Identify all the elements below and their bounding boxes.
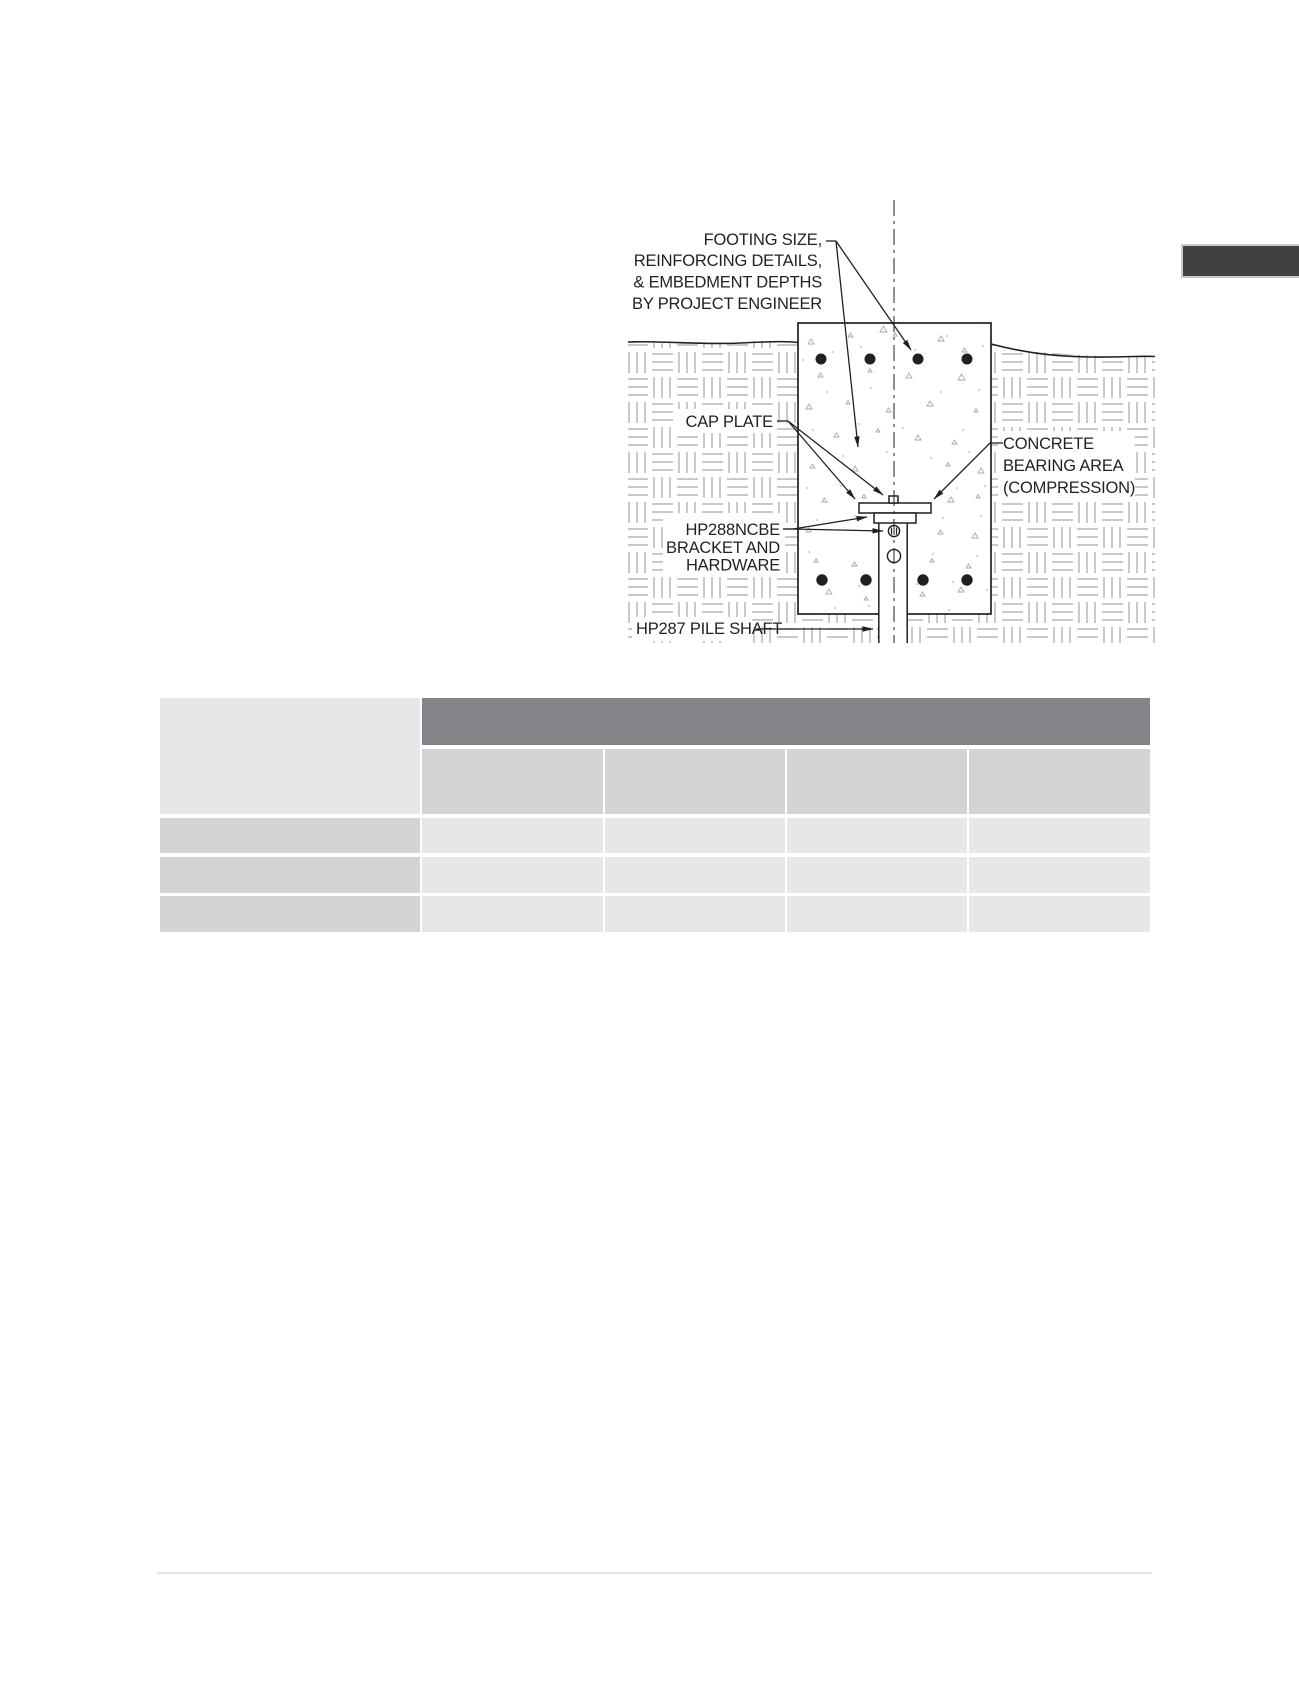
- table-subheader-cell: [969, 749, 1150, 814]
- table-data-cell: [605, 818, 785, 853]
- footing-note-label: BY PROJECT ENGINEER: [632, 295, 822, 313]
- pile-shaft-label: HP287 PILE SHAFT: [636, 620, 782, 638]
- footing-note-label: & EMBEDMENT DEPTHS: [633, 274, 822, 292]
- bracket-label: HARDWARE: [686, 557, 780, 575]
- table-subheader-cell: [422, 749, 603, 814]
- table-data-cell: [787, 896, 967, 932]
- table-subheader-cell: [605, 749, 785, 814]
- table-subheader-cell: [787, 749, 967, 814]
- table-data-cell: [787, 818, 967, 853]
- catalog-page: FOOTING SIZE, REINFORCING DETAILS, & EMB…: [0, 0, 1299, 1692]
- table-data-cell: [969, 818, 1150, 853]
- concrete-bearing-label: BEARING AREA: [1003, 457, 1124, 475]
- table-header-band: [422, 698, 1150, 745]
- table-data-cell: [969, 857, 1150, 893]
- bracket-label: HP288NCBE: [686, 521, 781, 539]
- cap-plate-label: CAP PLATE: [686, 413, 774, 431]
- bracket-shape: [874, 513, 916, 523]
- table-data-cell: [422, 857, 603, 893]
- table-data-cell: [605, 896, 785, 932]
- footing-note-label: FOOTING SIZE,: [704, 231, 822, 249]
- concrete-bearing-label: CONCRETE: [1003, 435, 1094, 453]
- capacity-table: [160, 698, 1150, 932]
- table-row-label: [160, 857, 420, 893]
- cap-plate-shape: [859, 503, 931, 513]
- concrete-bearing-label: (COMPRESSION): [1003, 479, 1135, 497]
- table-data-cell: [605, 857, 785, 893]
- table-data-cell: [422, 818, 603, 853]
- footer-divider: [157, 1572, 1152, 1574]
- table-data-cell: [422, 896, 603, 932]
- table-data-cell: [969, 896, 1150, 932]
- footing-note-label: REINFORCING DETAILS,: [634, 252, 822, 270]
- page-edge-index-tab: [1181, 244, 1299, 278]
- bracket-label: BRACKET AND: [666, 539, 780, 557]
- table-corner-cell: [160, 698, 420, 814]
- table-row-label: [160, 818, 420, 853]
- table-data-cell: [787, 857, 967, 893]
- table-row-label: [160, 896, 420, 932]
- pile-shaft: [879, 523, 907, 643]
